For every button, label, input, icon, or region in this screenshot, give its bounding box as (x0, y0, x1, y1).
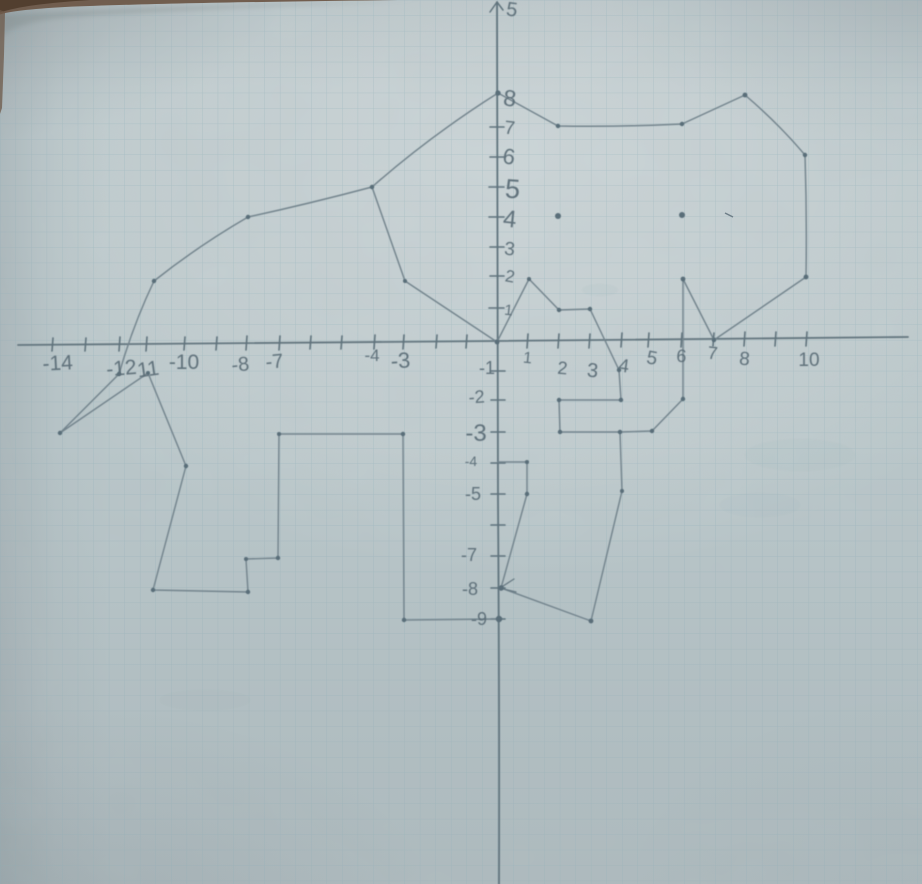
svg-text:1: 1 (503, 302, 513, 320)
svg-text:-5: -5 (465, 484, 481, 504)
svg-text:-7: -7 (461, 545, 477, 565)
svg-text:11: 11 (136, 357, 161, 383)
svg-text:3: 3 (503, 239, 516, 261)
svg-text:-8: -8 (230, 353, 250, 377)
svg-text:-14: -14 (42, 351, 74, 376)
svg-text:-10: -10 (169, 351, 199, 374)
svg-text:5: 5 (504, 174, 521, 205)
svg-text:1: 1 (522, 350, 533, 368)
svg-text:7: 7 (503, 118, 516, 140)
svg-text:8: 8 (502, 84, 517, 111)
svg-text:-7: -7 (265, 350, 285, 373)
svg-text:-3: -3 (465, 420, 486, 447)
svg-text:-12: -12 (105, 356, 137, 382)
svg-text:2: 2 (557, 358, 569, 379)
svg-text:10: 10 (798, 350, 819, 371)
svg-text:3: 3 (586, 360, 599, 383)
svg-text:-9: -9 (471, 609, 487, 629)
svg-text:-4: -4 (465, 453, 478, 469)
svg-text:4: 4 (502, 205, 518, 233)
svg-text:7: 7 (707, 343, 719, 364)
svg-text:-3: -3 (390, 347, 411, 373)
svg-text:8: 8 (738, 349, 750, 371)
svg-text:6: 6 (676, 346, 687, 367)
svg-text:-2: -2 (468, 386, 485, 407)
svg-text:-8: -8 (462, 579, 478, 599)
svg-text:-4: -4 (364, 346, 379, 365)
svg-text:-1: -1 (479, 358, 495, 378)
